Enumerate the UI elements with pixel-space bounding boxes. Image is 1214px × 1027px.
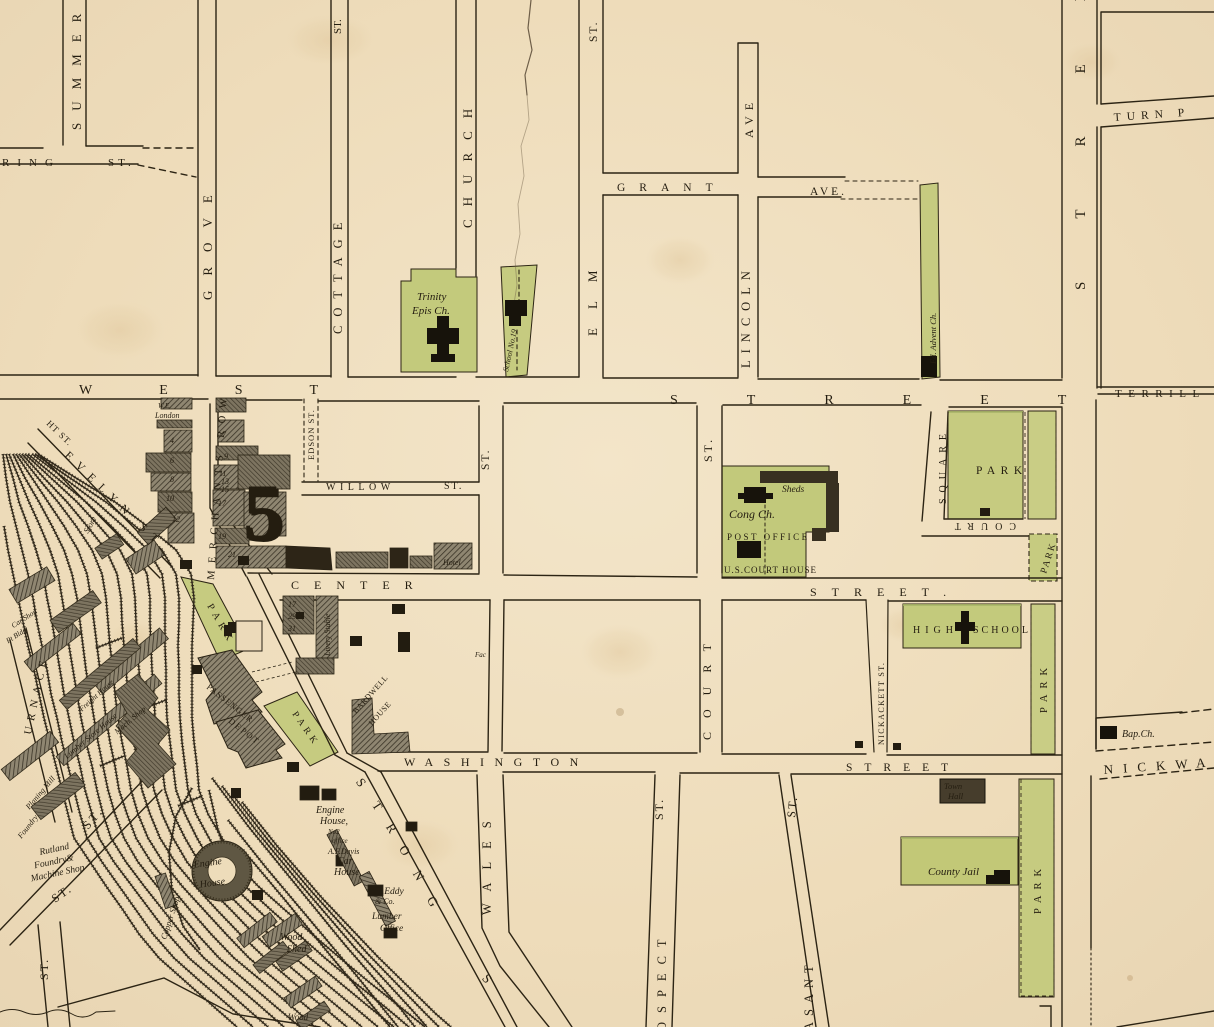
svg-text:COURT: COURT xyxy=(948,520,1016,531)
svg-text:ST.: ST. xyxy=(332,19,344,34)
svg-text:9: 9 xyxy=(224,452,228,461)
svg-text:No2: No2 xyxy=(327,828,340,836)
svg-text:ST.: ST. xyxy=(652,798,666,820)
svg-text:SUMMER: SUMMER xyxy=(69,2,84,130)
svg-text:ASANT: ASANT xyxy=(802,959,816,1027)
svg-text:ST.: ST. xyxy=(37,958,51,980)
svg-text:Engine: Engine xyxy=(315,805,345,816)
svg-text:SCHOOL: SCHOOL xyxy=(973,625,1031,636)
svg-text:Hotel: Hotel xyxy=(442,558,462,567)
svg-text:ST.: ST. xyxy=(701,437,715,462)
svg-text:Hall: Hall xyxy=(947,791,964,801)
svg-text:GROVE: GROVE xyxy=(200,180,215,300)
svg-text:Town: Town xyxy=(944,781,962,791)
svg-text:STREET: STREET xyxy=(670,393,1135,408)
svg-text:Trinity: Trinity xyxy=(417,291,446,303)
svg-text:17: 17 xyxy=(218,499,227,508)
svg-text:Lumber: Lumber xyxy=(371,912,402,922)
svg-text:SQUARE: SQUARE xyxy=(938,428,949,504)
svg-text:ST.: ST. xyxy=(108,157,135,169)
svg-text:COTTAGE: COTTAGE xyxy=(331,214,345,334)
svg-text:House: House xyxy=(333,867,360,878)
svg-text:AVE.: AVE. xyxy=(810,186,847,198)
svg-text:Cong Ch.: Cong Ch. xyxy=(729,507,775,521)
svg-text:Shed: Shed xyxy=(287,944,307,955)
svg-text:6: 6 xyxy=(170,456,174,465)
svg-text:ST.: ST. xyxy=(444,481,463,492)
svg-text:21: 21 xyxy=(228,550,236,559)
svg-text:Ed. Advent Ch.: Ed. Advent Ch. xyxy=(928,313,938,365)
svg-text:WALES: WALES xyxy=(480,808,494,915)
svg-text:WASHINGTON: WASHINGTON xyxy=(404,755,589,769)
svg-text:County Jail: County Jail xyxy=(928,866,979,878)
svg-text:8: 8 xyxy=(170,475,174,484)
svg-text:EDSON ST.: EDSON ST. xyxy=(306,409,316,460)
svg-text:Epis Ch.: Epis Ch. xyxy=(411,305,450,317)
svg-text:TERRILL: TERRILL xyxy=(1115,388,1206,400)
svg-text:STREE: STREE xyxy=(1073,0,1089,290)
svg-text:AVE: AVE xyxy=(742,97,756,138)
svg-text:J.L.Eddy: J.L.Eddy xyxy=(370,887,405,897)
svg-text:House,: House, xyxy=(319,816,348,827)
svg-text:WEST: WEST xyxy=(79,383,385,398)
svg-text:A.F.Davis: A.F.Davis xyxy=(327,847,359,856)
svg-text:ST.: ST. xyxy=(480,449,492,470)
svg-text:5: 5 xyxy=(243,469,283,557)
svg-text:STREET: STREET xyxy=(846,762,960,774)
svg-text:ST.: ST. xyxy=(588,21,600,42)
svg-text:U.S.COURT HOUSE: U.S.COURT HOUSE xyxy=(724,565,817,575)
svg-text:29: 29 xyxy=(288,612,296,621)
svg-text:Bap.Ch.: Bap.Ch. xyxy=(1122,729,1155,740)
svg-text:LINCOLN: LINCOLN xyxy=(739,264,753,368)
svg-text:W.E.: W.E. xyxy=(158,402,171,410)
svg-text:19: 19 xyxy=(218,532,226,541)
svg-text:Fac: Fac xyxy=(474,651,487,659)
svg-text:London: London xyxy=(154,411,179,420)
svg-text:& Co.: & Co. xyxy=(375,897,395,906)
svg-text:12: 12 xyxy=(172,515,180,524)
svg-text:10: 10 xyxy=(166,494,174,503)
svg-text:PARK: PARK xyxy=(976,465,1028,477)
svg-text:Wood: Wood xyxy=(280,932,303,943)
svg-text:4: 4 xyxy=(170,436,174,445)
svg-text:COURT: COURT xyxy=(700,630,714,740)
svg-text:RING: RING xyxy=(2,157,61,169)
svg-text:PARK: PARK xyxy=(1033,863,1044,914)
svg-text:15: 15 xyxy=(221,485,229,494)
svg-text:PARK: PARK xyxy=(1039,662,1050,713)
svg-text:Office: Office xyxy=(380,923,403,934)
svg-text:NICKACKETT ST.: NICKACKETT ST. xyxy=(877,662,886,745)
svg-text:POST OFFICE: POST OFFICE xyxy=(727,532,810,542)
svg-text:Car: Car xyxy=(337,856,353,867)
svg-text:office: office xyxy=(332,837,348,845)
svg-text:Wood: Wood xyxy=(288,1012,309,1022)
svg-text:CHURCH: CHURCH xyxy=(460,96,475,228)
svg-text:Livery Stable: Livery Stable xyxy=(323,613,332,657)
svg-text:HIGH: HIGH xyxy=(913,625,958,636)
svg-text:ELM: ELM xyxy=(585,252,600,336)
svg-text:GRANT: GRANT xyxy=(617,182,727,194)
svg-text:OSPECT: OSPECT xyxy=(655,930,669,1027)
svg-text:STREET.: STREET. xyxy=(810,585,961,599)
svg-text:ST.: ST. xyxy=(784,795,800,818)
svg-text:WILLOW: WILLOW xyxy=(326,482,395,493)
svg-text:17: 17 xyxy=(288,600,297,609)
svg-text:31: 31 xyxy=(287,624,296,633)
svg-text:Sheds: Sheds xyxy=(782,485,804,495)
svg-text:CENTER: CENTER xyxy=(291,578,428,592)
